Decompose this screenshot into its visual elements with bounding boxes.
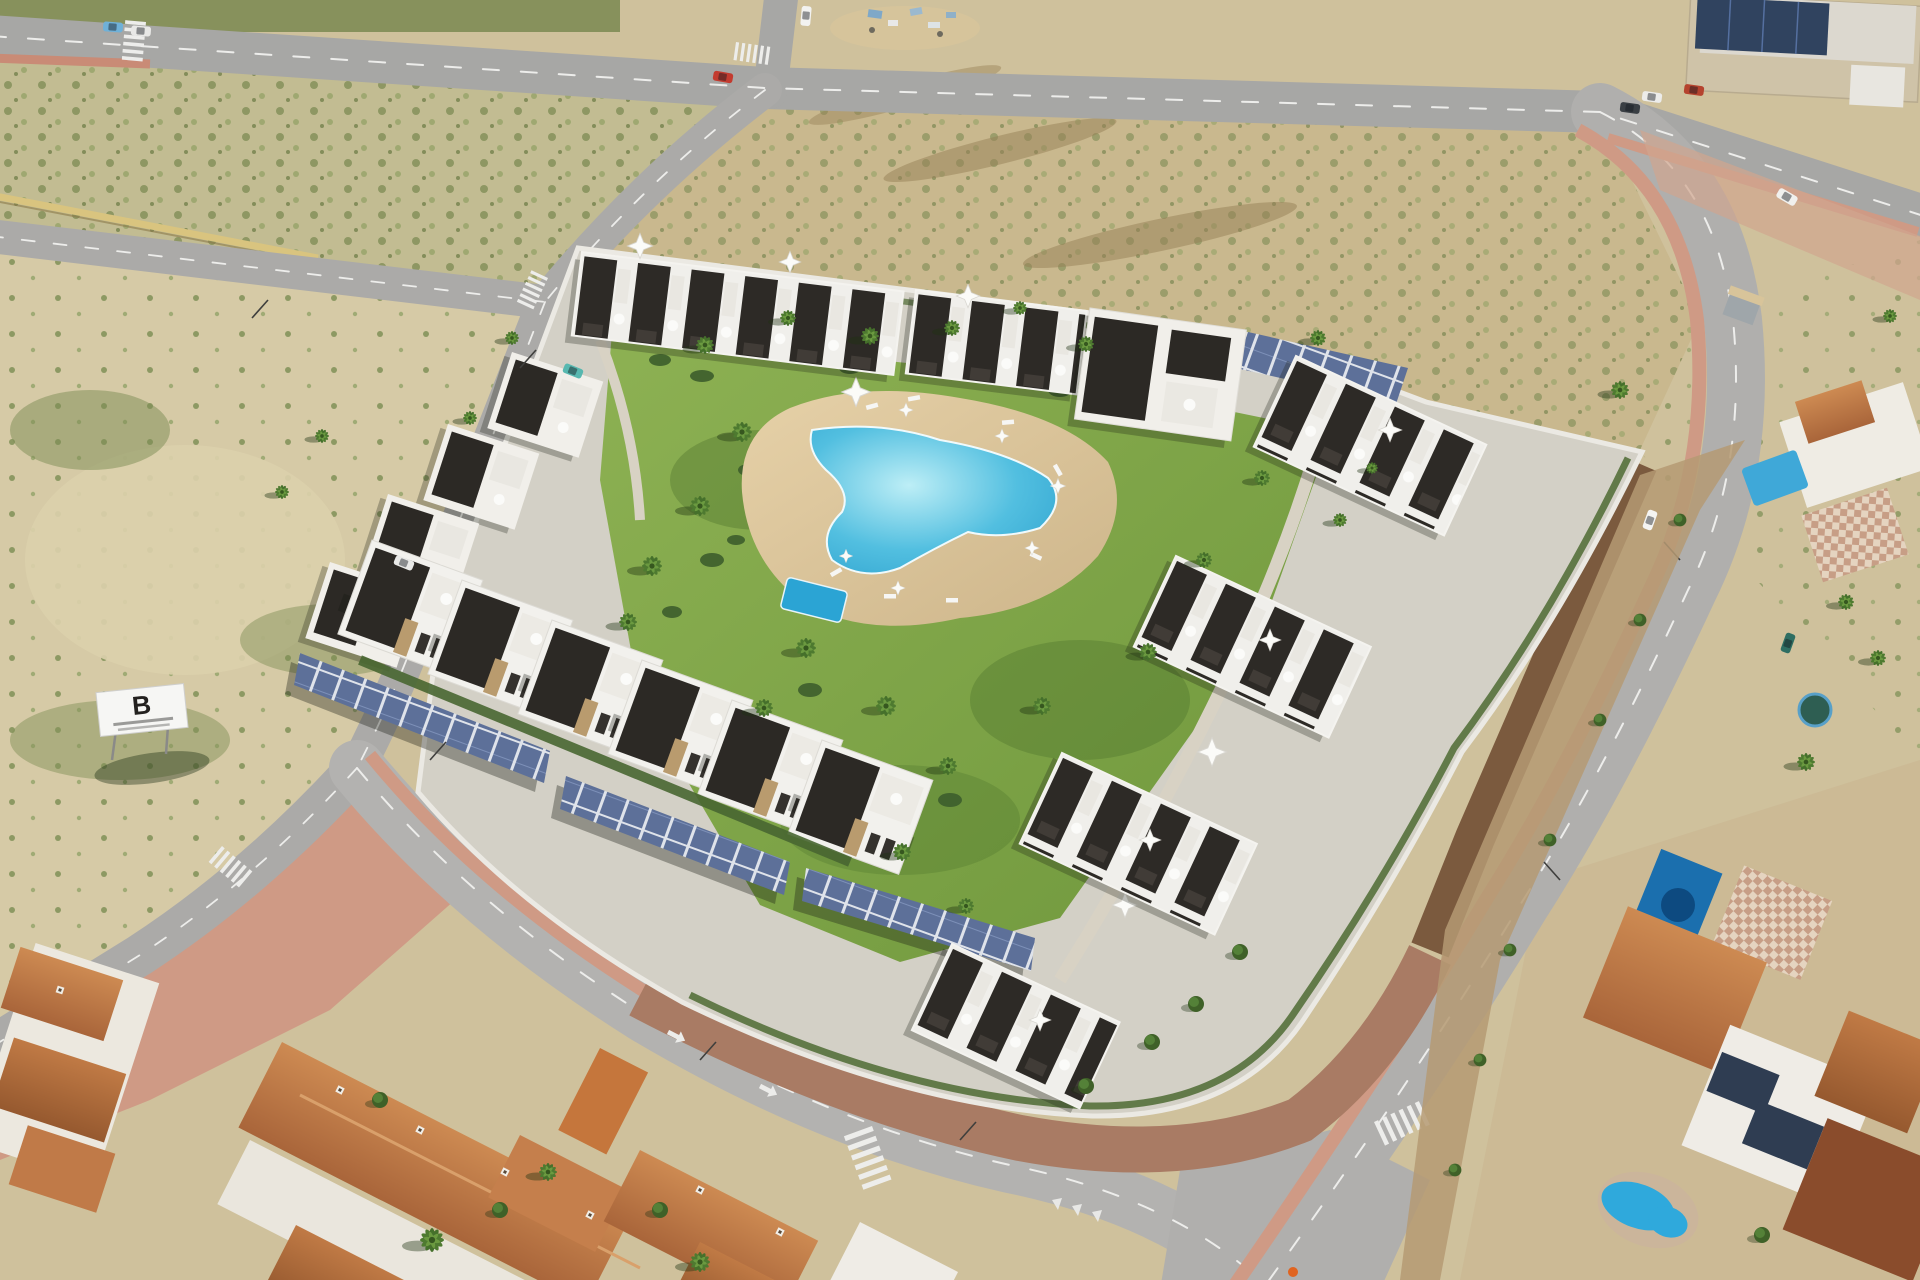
industrial-warehouse: [1685, 0, 1920, 108]
aerial-scene: B: [0, 0, 1920, 1280]
scrub-clump: [10, 390, 170, 470]
billboard-logo-text: B: [131, 689, 153, 721]
van: [800, 6, 812, 27]
small-building: [1849, 65, 1905, 108]
construction-debris: [830, 6, 980, 50]
pool-feature: [1661, 888, 1695, 922]
aerial-photo: B: [0, 0, 1920, 1280]
round-pool: [1799, 694, 1831, 726]
car: [103, 21, 123, 32]
car: [131, 25, 151, 36]
traffic-cone: [1288, 1267, 1298, 1277]
building-ne-corner: [1067, 307, 1246, 449]
